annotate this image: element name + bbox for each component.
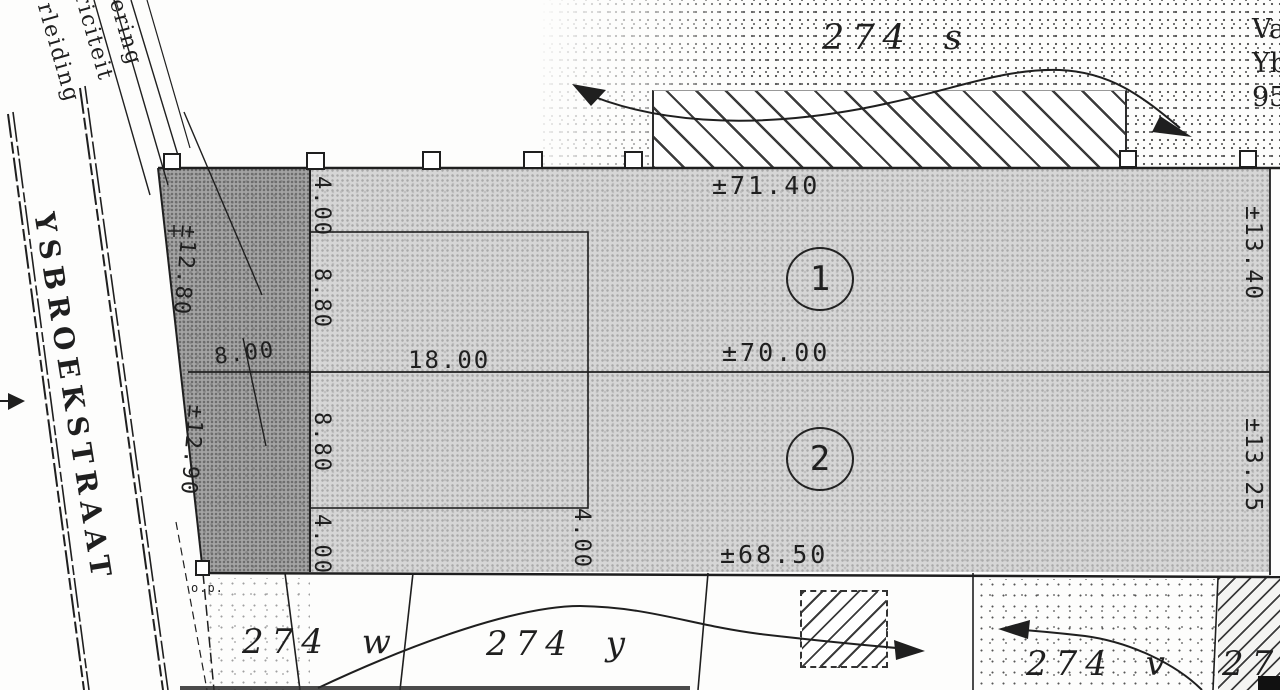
dim-right-upper: ±13.40 (1240, 206, 1266, 301)
arrowhead-right (1152, 116, 1192, 137)
parcel-label-274v: 274 v (1026, 644, 1173, 684)
lot-boundary (698, 573, 708, 690)
parcel-bottom-edge (203, 573, 1280, 577)
dim-bottom-width: ±68.50 (720, 540, 828, 569)
margin-arrowhead (8, 393, 25, 410)
survey-peg (625, 152, 642, 168)
lot-boundary (1213, 578, 1218, 690)
survey-peg (307, 153, 324, 169)
survey-peg (196, 561, 209, 575)
street-line (80, 88, 163, 690)
edge-label-yb: Yb (1252, 48, 1280, 79)
lot-boundary (400, 573, 413, 690)
edge-label-va: Va (1252, 14, 1280, 45)
parcel-label-274s: 274 s (822, 18, 970, 58)
survey-peg (1120, 151, 1136, 167)
lot-number-2: 2 (786, 427, 854, 491)
dim-rect-right: 4.00 (569, 508, 594, 569)
arrowhead-square (894, 640, 925, 660)
dim-seg-bottom: 4.00 (309, 514, 334, 575)
arrowhead-274v (998, 620, 1030, 639)
edge-label-95: 95 (1252, 82, 1280, 113)
parcel-label-274y: 274 y (486, 624, 633, 664)
dim-mid-width: ±70.00 (722, 338, 830, 367)
cadastral-plan: YSBROEKSTRAAT o.p. ering riciteit rleidi… (0, 0, 1280, 690)
lot-number-1: 1 (786, 247, 854, 311)
parcel-label-274w: 274 w (242, 622, 399, 662)
arrowhead-left (572, 84, 606, 106)
flow-curve-274s (580, 70, 1180, 128)
street-line (85, 86, 168, 690)
dim-seg-upper: 8.80 (309, 268, 334, 329)
dim-seg-lower: 8.80 (309, 412, 334, 473)
survey-peg (524, 152, 542, 168)
street-marker-note: o.p. (191, 581, 224, 595)
dim-seg-top: 4.00 (309, 176, 334, 237)
survey-peg (423, 152, 440, 169)
dim-right-lower: ±13.25 (1240, 418, 1266, 513)
boundary-dashed (176, 522, 207, 690)
parcel-label-274-corner: 274 (1222, 644, 1280, 684)
dim-top-width: ±71.40 (712, 171, 820, 200)
survey-peg (164, 154, 180, 169)
dim-rect-width: 18.00 (408, 346, 490, 374)
scan-smudge (180, 686, 690, 690)
survey-peg (1240, 151, 1256, 167)
